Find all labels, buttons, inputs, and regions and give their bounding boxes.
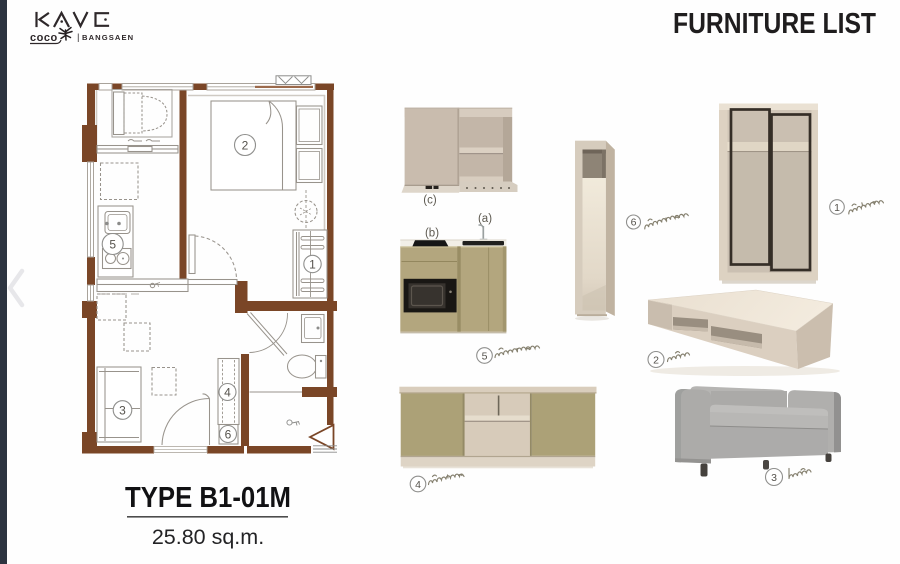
svg-text:2: 2 [653, 354, 659, 366]
svg-text:3: 3 [771, 472, 777, 484]
svg-text:(c): (c) [423, 195, 437, 207]
svg-text:1: 1 [309, 257, 316, 271]
svg-text:4: 4 [415, 479, 421, 491]
svg-text:TYPE B1-01M: TYPE B1-01M [125, 482, 291, 514]
svg-text:25.80 sq.m.: 25.80 sq.m. [152, 525, 264, 549]
svg-text:6: 6 [225, 427, 232, 441]
svg-text:6: 6 [631, 217, 637, 229]
svg-text:5: 5 [109, 238, 116, 252]
svg-text:1: 1 [834, 202, 840, 214]
svg-text:4: 4 [224, 385, 231, 399]
svg-text:FURNITURE LIST: FURNITURE LIST [673, 8, 877, 40]
svg-text:(a): (a) [478, 213, 492, 225]
svg-text:BANGSAEN: BANGSAEN [82, 33, 134, 42]
svg-text:coco: coco [30, 32, 58, 44]
svg-text:2: 2 [242, 139, 249, 153]
svg-text:|: | [77, 32, 79, 43]
svg-text:(b): (b) [425, 228, 439, 240]
svg-text:5: 5 [482, 350, 488, 362]
svg-text:3: 3 [119, 404, 126, 418]
